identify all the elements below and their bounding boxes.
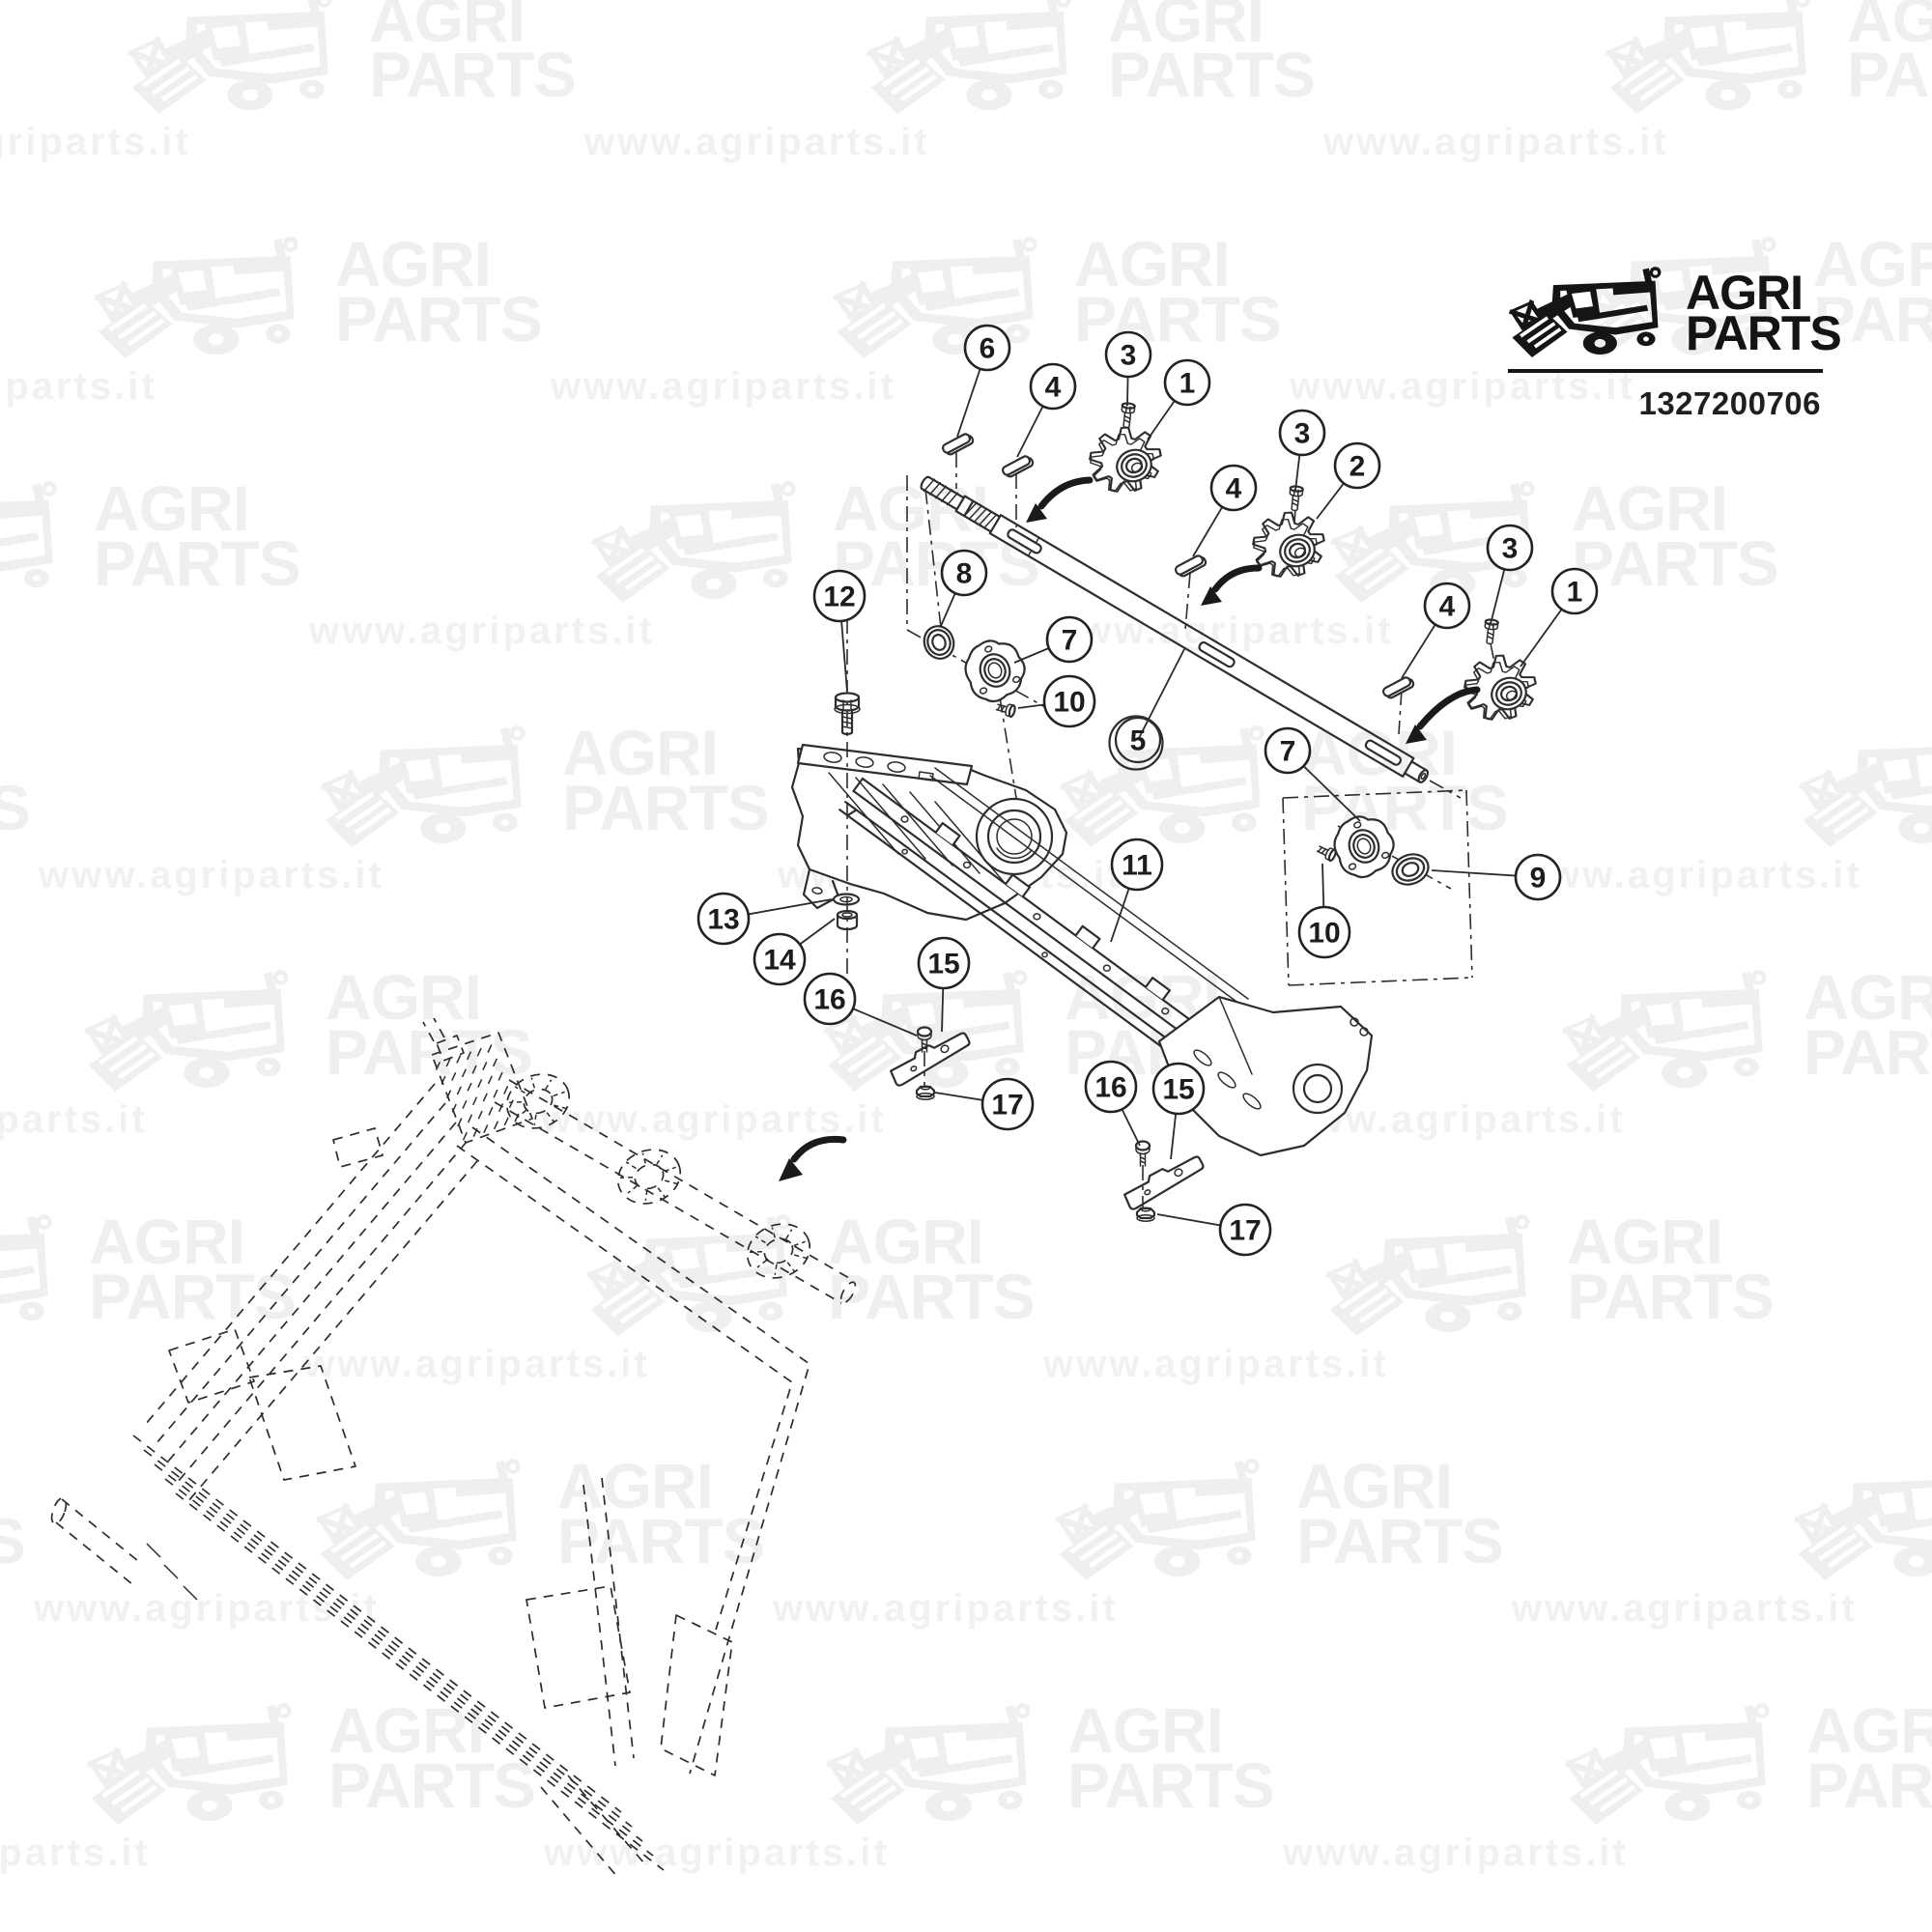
svg-text:3: 3: [1121, 340, 1137, 372]
screw: [1120, 403, 1135, 428]
ghost-sprocket: [498, 1065, 577, 1138]
svg-text:14: 14: [763, 945, 796, 977]
bearing-flange: [1326, 808, 1402, 884]
callout-3: 3: [1488, 526, 1532, 624]
bearing: [1388, 849, 1433, 890]
callout-5-highlighted: 5: [1110, 649, 1185, 770]
svg-text:10: 10: [1053, 687, 1085, 719]
plate: [1122, 1151, 1207, 1210]
callout-16: 16: [805, 974, 917, 1036]
callout-12: 12: [814, 571, 865, 692]
callout-1: 1: [1148, 360, 1209, 440]
svg-text:9: 9: [1530, 863, 1547, 895]
shaft-key: [1002, 454, 1035, 479]
shaft-key: [1382, 675, 1415, 700]
svg-text:3: 3: [1294, 418, 1311, 450]
svg-text:6: 6: [980, 333, 996, 365]
svg-text:11: 11: [1122, 850, 1152, 882]
callout-1: 1: [1520, 569, 1597, 667]
callout-10: 10: [1299, 864, 1350, 957]
frame-and-brackets: [792, 745, 1372, 1221]
callout-11: 11: [1111, 839, 1162, 942]
callout-8: 8: [941, 551, 986, 626]
callout-16: 16: [1086, 1062, 1140, 1146]
callout-2: 2: [1317, 443, 1379, 519]
logo-divider: [1508, 369, 1823, 373]
bolt: [835, 694, 860, 735]
insertion-arrow: [779, 1139, 843, 1181]
svg-text:15: 15: [1162, 1074, 1194, 1106]
nut: [1137, 1207, 1154, 1221]
bearing-flange: [957, 632, 1033, 708]
ghost-assembly-preview: [49, 1018, 859, 1878]
svg-text:1: 1: [1567, 577, 1583, 609]
callout-17: 17: [935, 1079, 1033, 1129]
sprockets: [1085, 421, 1542, 726]
insertion-arrow: [1201, 568, 1259, 606]
svg-text:5: 5: [1130, 725, 1147, 757]
svg-text:1: 1: [1179, 368, 1196, 400]
callout-4: 4: [1017, 364, 1075, 457]
callout-10: 10: [1018, 676, 1094, 726]
svg-text:8: 8: [956, 558, 973, 590]
washer-and-bushing: [834, 895, 859, 930]
chain-sprocket: [1085, 421, 1167, 498]
svg-text:16: 16: [1094, 1072, 1126, 1104]
brand-line2: PARTS: [1686, 313, 1841, 354]
screw: [996, 701, 1016, 717]
shaft-body: [918, 472, 1432, 787]
plate: [888, 1028, 973, 1087]
svg-text:12: 12: [823, 582, 855, 613]
svg-text:4: 4: [1226, 473, 1242, 505]
screw: [1136, 1142, 1150, 1167]
svg-text:17: 17: [1229, 1215, 1261, 1247]
svg-text:13: 13: [707, 904, 739, 936]
insertion-arrow: [1406, 690, 1477, 744]
svg-text:3: 3: [1502, 533, 1519, 565]
svg-text:7: 7: [1280, 736, 1296, 768]
callout-15: 15: [919, 938, 969, 1032]
svg-text:17: 17: [991, 1090, 1023, 1122]
svg-text:2: 2: [1350, 451, 1366, 483]
svg-text:7: 7: [1062, 625, 1078, 657]
callout-3: 3: [1106, 332, 1151, 406]
svg-text:15: 15: [927, 949, 959, 980]
callout-6: 6: [957, 326, 1009, 437]
insertion-arrow: [1026, 480, 1090, 523]
svg-text:16: 16: [813, 984, 845, 1016]
hold-down-plate-set: [1122, 1142, 1207, 1222]
callout-4: 4: [1193, 466, 1256, 556]
part-number: 1327200706: [1508, 385, 1827, 422]
callout-3: 3: [1280, 411, 1324, 491]
drive-shaft: [918, 472, 1432, 787]
svg-text:4: 4: [1439, 591, 1456, 623]
brand-logo-block: AGRI PARTS 1327200706: [1508, 267, 1827, 422]
callout-7: 7: [1014, 617, 1092, 663]
combine-harvester-logo-icon: [1508, 267, 1678, 360]
svg-text:4: 4: [1045, 372, 1062, 404]
callout-9: 9: [1432, 855, 1560, 899]
nut: [917, 1086, 934, 1099]
bearing-ring: [920, 622, 958, 663]
hold-down-plate-set: [888, 1028, 973, 1100]
brand-name: AGRI PARTS: [1686, 267, 1841, 354]
callout-4: 4: [1402, 583, 1469, 678]
svg-text:10: 10: [1308, 918, 1340, 950]
parts-diagram-page: AGRIPARTSwww.agriparts.itAGRIPARTSwww.ag…: [0, 0, 1932, 1932]
callout-17: 17: [1157, 1205, 1270, 1255]
